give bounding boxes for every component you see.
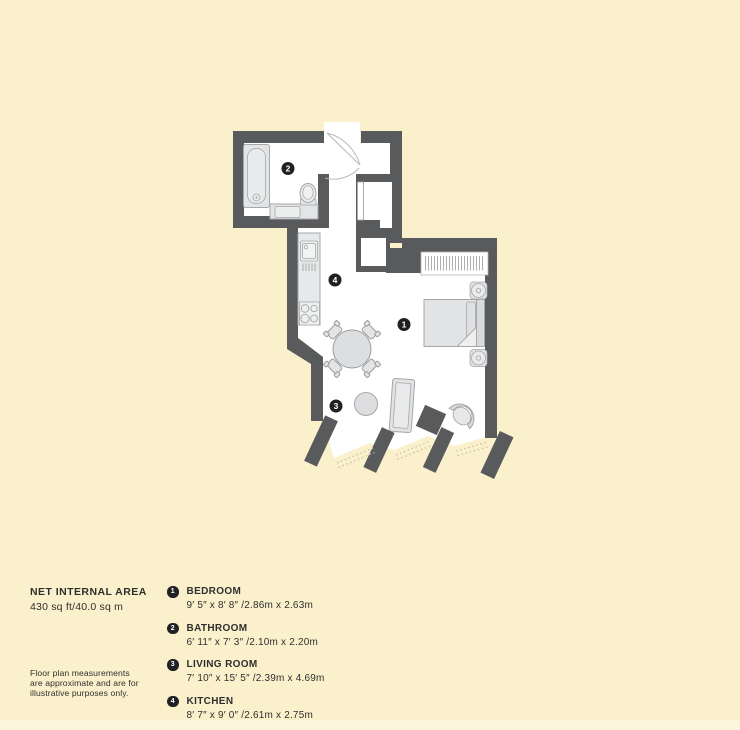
disclaimer-line: illustrative purposes only. (30, 688, 139, 698)
legend-room-name: KITCHEN (187, 696, 234, 707)
window-dashes (458, 447, 490, 456)
disclaimer-line: Floor plan measurements (30, 668, 139, 678)
legend-badge: 3 (167, 659, 179, 671)
svg-text:4: 4 (333, 275, 338, 285)
wall-kitchen-west (287, 228, 298, 340)
legend-item-living-room: 3 LIVING ROOM 7′ 10″ x 15′ 5″ /2.39m x 4… (167, 659, 325, 684)
legend-room-name: BEDROOM (187, 586, 242, 597)
legend-room-name: LIVING ROOM (187, 659, 258, 670)
nightstand-top (472, 284, 486, 298)
net-internal-area: NET INTERNAL AREA 430 sq ft/40.0 sq m (30, 586, 147, 613)
net-internal-area-title: NET INTERNAL AREA (30, 586, 147, 598)
plan-badge-bathroom: 2 (282, 162, 295, 175)
disclaimer-note: Floor plan measurements are approximate … (30, 668, 139, 698)
bed-headboard (477, 300, 485, 347)
wall-bath-east (318, 174, 329, 228)
bathtub-drain-dot (256, 197, 258, 199)
plan-badge-bedroom: 1 (398, 318, 411, 331)
floorplan-drawing: 1 2 3 4 (0, 0, 740, 730)
legend-badge: 2 (167, 623, 179, 635)
svg-text:3: 3 (334, 401, 339, 411)
floorplan-page: 1 2 3 4 NET INTERNAL AREA 430 sq ft/40.0… (0, 0, 740, 730)
wall-bedroom-top (402, 238, 497, 252)
legend-badge: 1 (167, 586, 179, 598)
net-internal-area-value: 430 sq ft/40.0 sq m (30, 601, 147, 613)
sofa (389, 378, 415, 432)
vanity-sink (275, 207, 300, 218)
room-legend: 1 BEDROOM 9′ 5″ x 8′ 8″ /2.86m x 2.63m 2… (167, 586, 325, 730)
disclaimer-line: are approximate and are for (30, 678, 139, 688)
legend-badge: 4 (167, 696, 179, 708)
side-table (355, 393, 378, 416)
kitchen-fixtures (298, 233, 320, 325)
legend-room-name: BATHROOM (187, 623, 248, 634)
toilet-bowl-inner (303, 186, 313, 200)
legend-item-kitchen: 4 KITCHEN 8′ 7″ x 9′ 0″ /2.61m x 2.75m (167, 696, 325, 721)
window-dashes (398, 446, 432, 460)
bottom-edge-strip (0, 720, 740, 730)
closet-lower (361, 238, 386, 266)
radiator-body (421, 252, 488, 275)
closet-upper-door (358, 182, 364, 220)
legend-room-dimensions: 7′ 10″ x 15′ 5″ /2.39m x 4.69m (187, 673, 325, 684)
legend-item-bedroom: 1 BEDROOM 9′ 5″ x 8′ 8″ /2.86m x 2.63m (167, 586, 325, 611)
wall-bath-top (233, 131, 326, 143)
nightstand-top (472, 351, 486, 365)
facade-pier (480, 431, 513, 479)
plan-badge-kitchen: 4 (329, 274, 342, 287)
svg-text:2: 2 (286, 164, 291, 174)
legend-room-dimensions: 9′ 5″ x 8′ 8″ /2.86m x 2.63m (187, 600, 325, 611)
legend-item-bathroom: 2 BATHROOM 6′ 11″ x 7′ 3″ /2.10m x 2.20m (167, 623, 325, 648)
legend-room-dimensions: 8′ 7″ x 9′ 0″ /2.61m x 2.75m (187, 710, 325, 721)
wall-bath-left (233, 131, 244, 228)
svg-text:1: 1 (402, 320, 407, 330)
dining-table (333, 330, 371, 368)
legend-room-dimensions: 6′ 11″ x 7′ 3″ /2.10m x 2.20m (187, 637, 325, 648)
plan-badge-living-room: 3 (330, 400, 343, 413)
